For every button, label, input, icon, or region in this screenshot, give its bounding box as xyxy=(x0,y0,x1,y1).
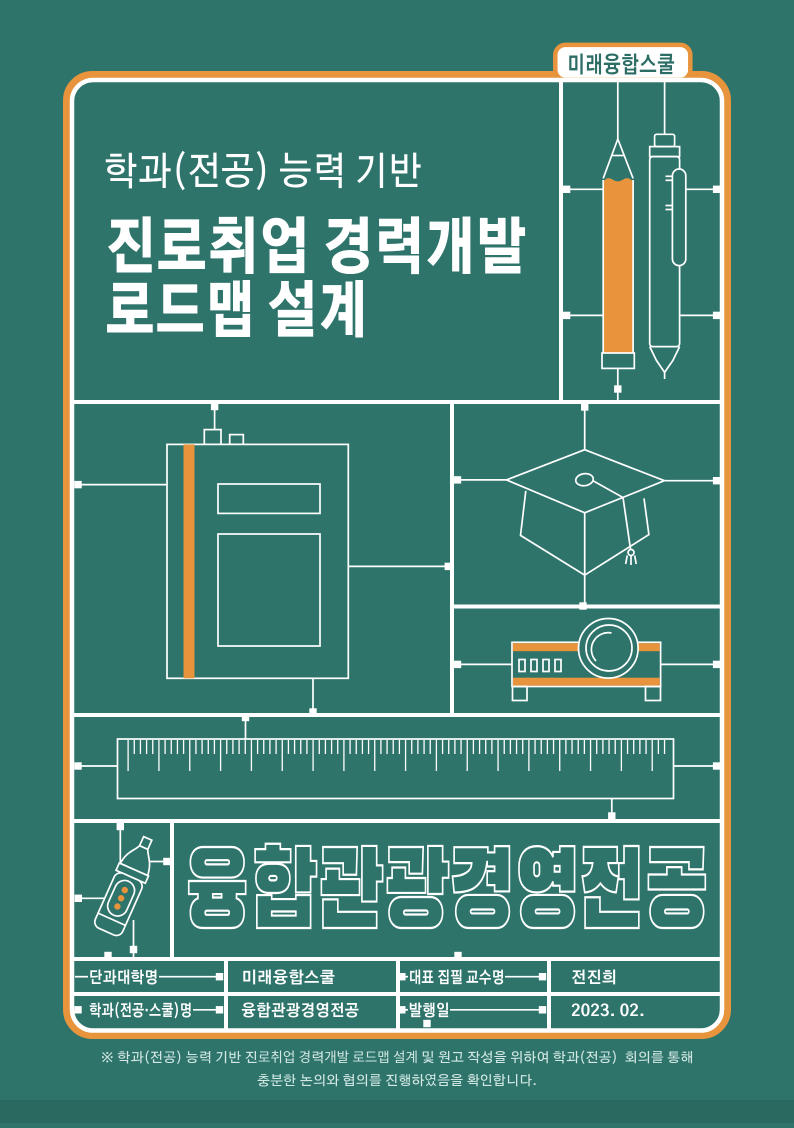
svg-text:2023. 02.: 2023. 02. xyxy=(571,1003,645,1020)
svg-text:학과(전공) 능력 기반: 학과(전공) 능력 기반 xyxy=(104,151,422,193)
svg-text:충분한 논의와 협의를 진행하였음을 확인합니다.: 충분한 논의와 협의를 진행하였음을 확인합니다. xyxy=(257,1073,537,1088)
svg-text:진로취업 경력개발: 진로취업 경력개발 xyxy=(105,216,527,282)
svg-text:전진희: 전진희 xyxy=(571,969,617,987)
svg-text:학과(전공·스쿨)명: 학과(전공·스쿨)명 xyxy=(89,1001,192,1020)
svg-text:대표 집필 교수명: 대표 집필 교수명 xyxy=(409,969,505,987)
svg-text:발행일: 발행일 xyxy=(409,1002,450,1020)
svg-text:로드맵 설계: 로드맵 설계 xyxy=(105,279,368,345)
svg-text:미래융합스쿨: 미래융합스쿨 xyxy=(567,54,675,78)
svg-text:단과대학명: 단과대학명 xyxy=(89,969,158,987)
svg-text:융합관광경영전공: 융합관광경영전공 xyxy=(241,1002,359,1020)
svg-text:융합관광경영전공: 융합관광경영전공 xyxy=(184,843,710,951)
svg-text:※ 학과(전공) 능력 기반 진로취업 경력개발 로드맵 설: ※ 학과(전공) 능력 기반 진로취업 경력개발 로드맵 설계 및 원고 작성을… xyxy=(101,1050,694,1065)
svg-text:미래융합스쿨: 미래융합스쿨 xyxy=(241,969,335,987)
